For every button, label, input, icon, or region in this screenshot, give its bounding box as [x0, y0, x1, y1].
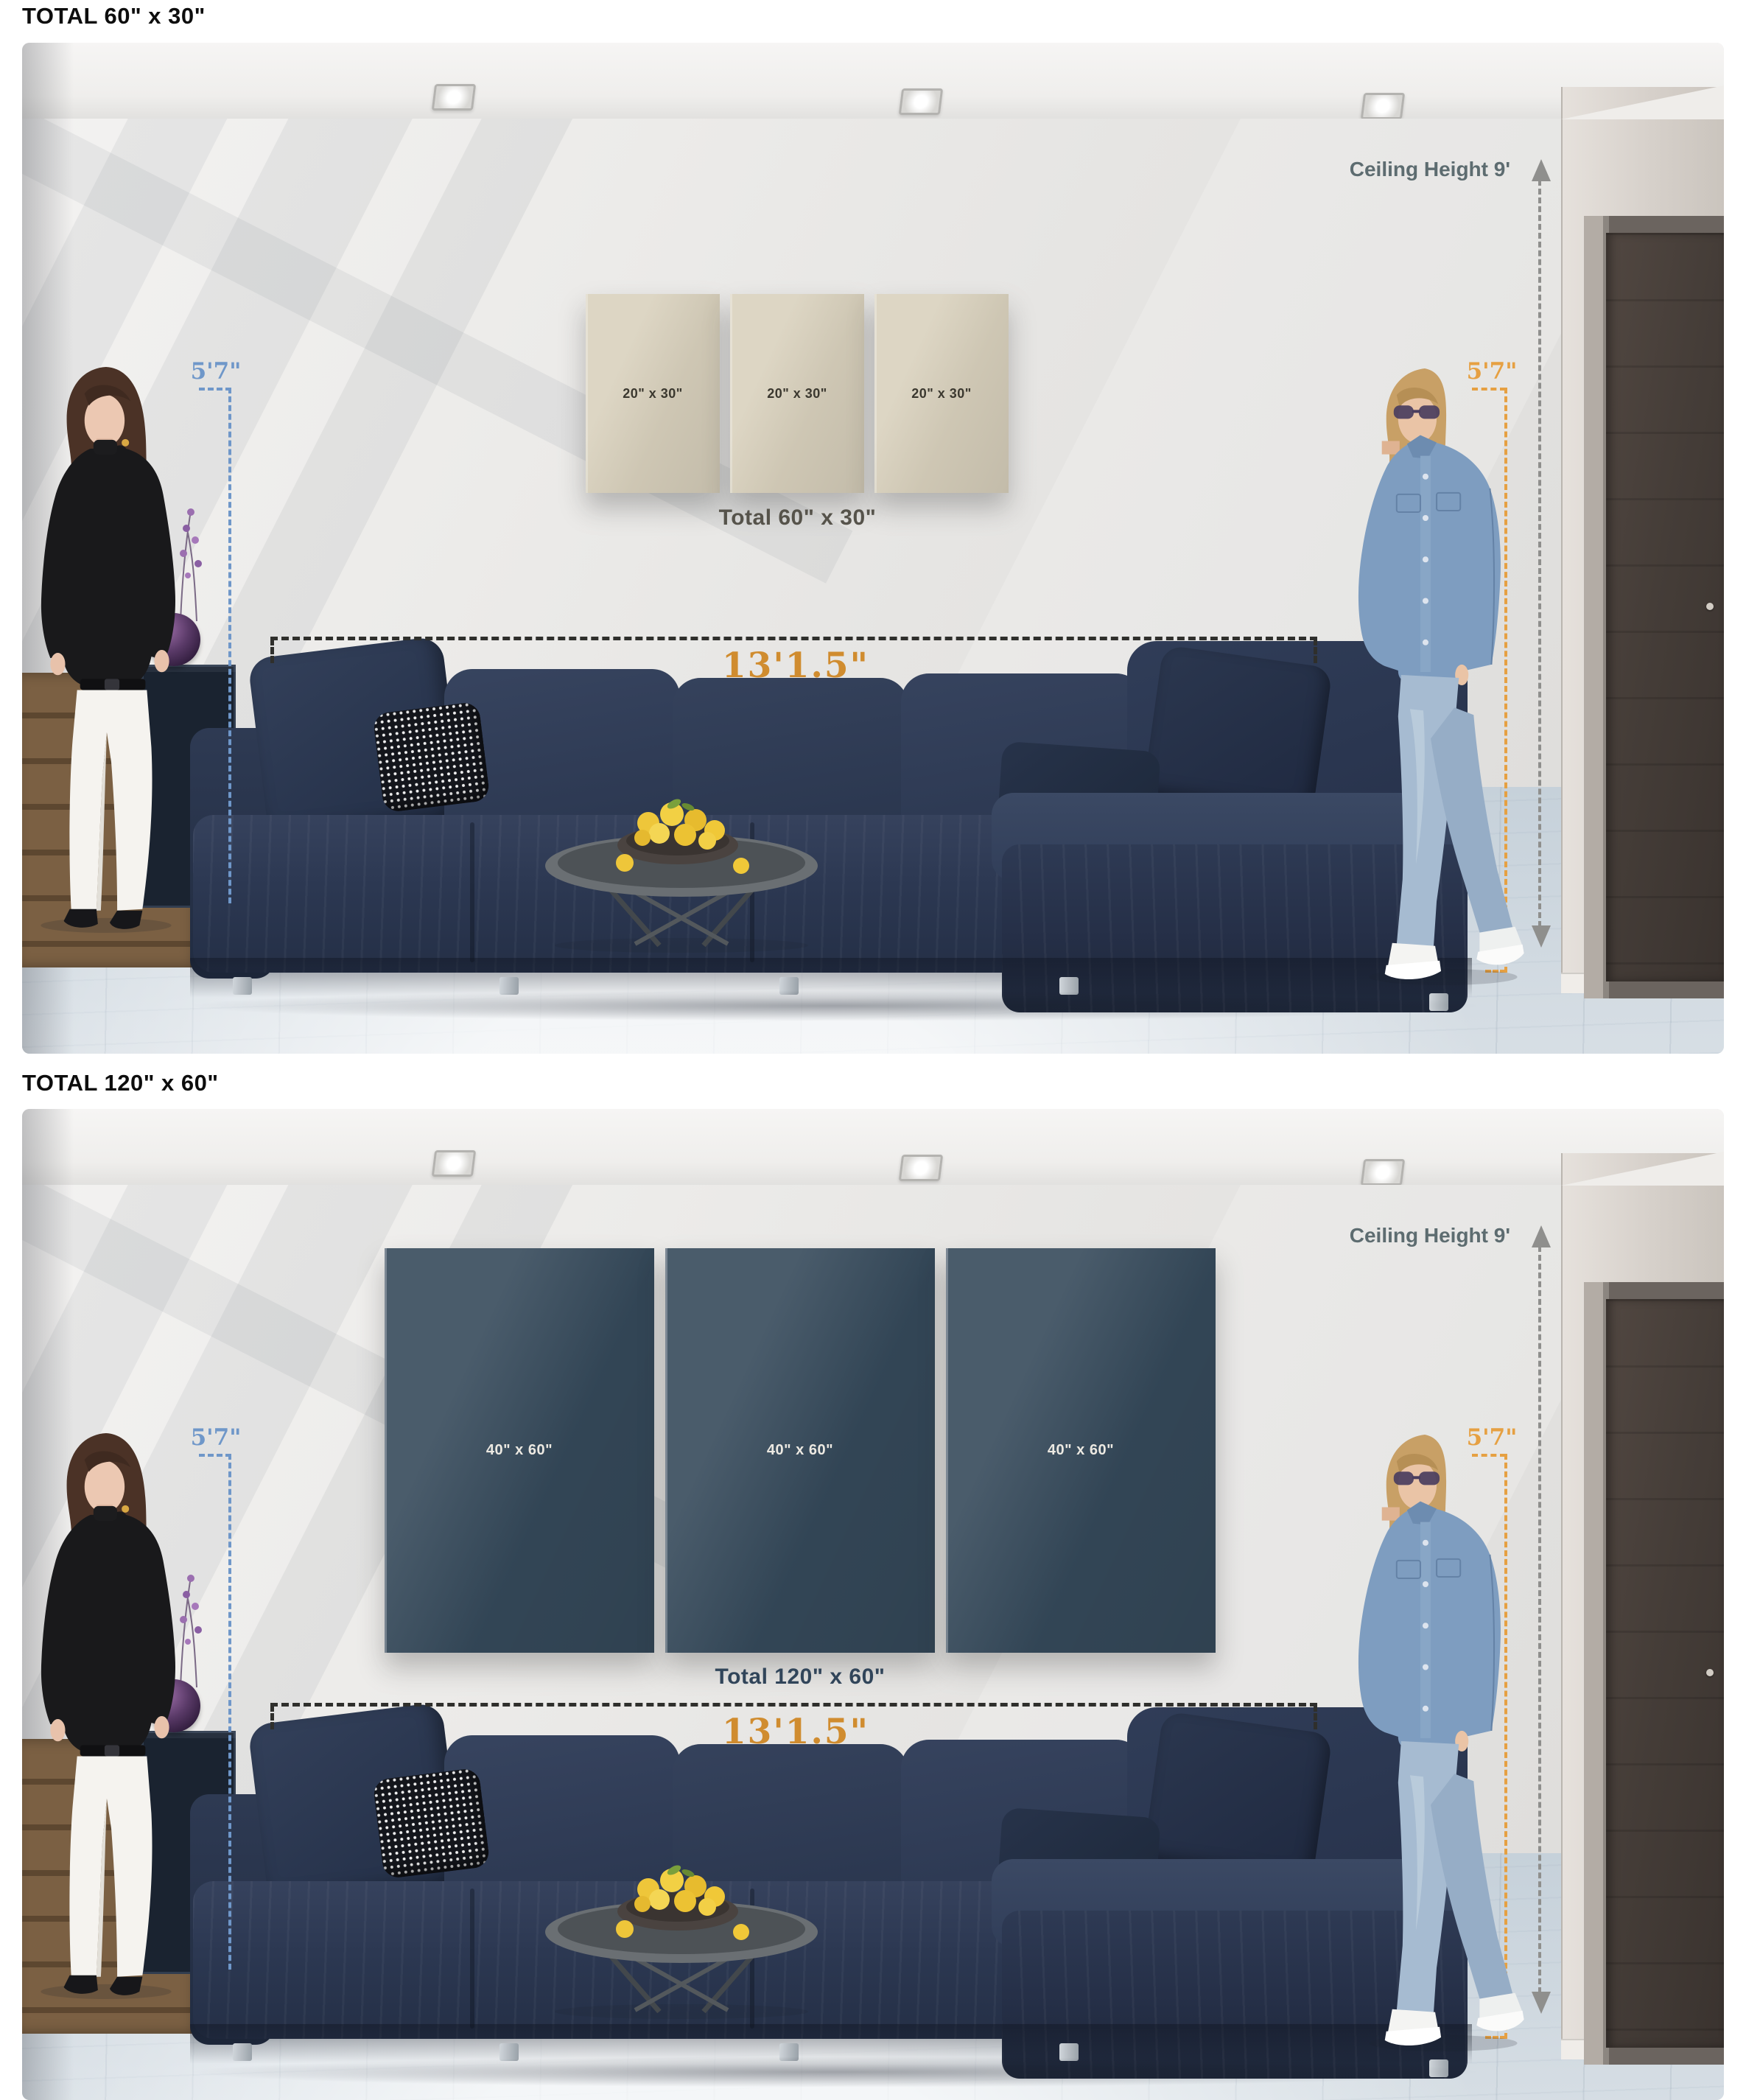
total-size-caption: Total 120" x 60" [385, 1665, 1216, 1690]
arrow-up-icon [1532, 1225, 1551, 1247]
canvas-panel-1: 40" x 60" [385, 1248, 654, 1653]
sofa-leg [233, 977, 252, 995]
person-right [1313, 1427, 1544, 2057]
panel-size-label: 40" x 60" [767, 1442, 833, 1459]
room-scene-small: 20" x 30" 20" x 30" 20" x 30" Total 60" … [22, 43, 1724, 1054]
person-right [1313, 361, 1544, 990]
checkered-pillow [372, 701, 490, 813]
sofa-leg [233, 2043, 252, 2061]
ceiling [22, 43, 1724, 120]
door-handle-icon [1706, 1669, 1714, 1676]
panel-size-label: 40" x 60" [1048, 1442, 1114, 1459]
panel-size-label: 40" x 60" [486, 1442, 553, 1459]
sofa-pillow [1143, 1711, 1333, 1884]
sofa-width-tick [270, 638, 274, 663]
panel-size-label: 20" x 30" [911, 386, 972, 402]
ceiling-light [1361, 93, 1405, 119]
door-handle-icon [1706, 603, 1714, 610]
canvas-panel-2: 20" x 30" [730, 294, 864, 493]
ceiling-light [899, 88, 943, 115]
ceiling [22, 1109, 1724, 1186]
ceiling-light [432, 84, 476, 111]
section-title-small: TOTAL 60" x 30" [22, 3, 206, 29]
person-left [27, 361, 193, 933]
canvas-panel-1: 20" x 30" [586, 294, 720, 493]
coffee-table [538, 769, 825, 954]
ceiling-light [899, 1155, 943, 1181]
left-height-line [228, 1454, 231, 1970]
canvas-panel-3: 20" x 30" [874, 294, 1009, 493]
sofa-pillow [1143, 645, 1333, 818]
sofa-width-line [270, 637, 1317, 640]
ceiling-height-label: Ceiling Height 9' [1267, 158, 1510, 181]
panel-size-label: 20" x 30" [767, 386, 827, 402]
left-height-line [228, 388, 231, 903]
left-height-dash [199, 388, 231, 391]
canvas-panel-3: 40" x 60" [946, 1248, 1216, 1653]
arrow-up-icon [1532, 159, 1551, 181]
room-scene-large: 40" x 60" 40" x 60" 40" x 60" Total 120"… [22, 1109, 1724, 2100]
sofa-width-label: 13'1.5" [575, 1712, 1017, 1752]
coffee-table [538, 1835, 825, 2020]
ceiling-height-label: Ceiling Height 9' [1267, 1224, 1510, 1247]
person-left [27, 1427, 193, 1999]
section-title-large: TOTAL 120" x 60" [22, 1070, 219, 1096]
sofa-width-tick [270, 1704, 274, 1729]
sofa-width-label: 13'1.5" [575, 645, 1017, 686]
panel-size-label: 20" x 30" [623, 386, 683, 402]
total-size-caption: Total 60" x 30" [586, 505, 1009, 531]
ceiling-light [432, 1150, 476, 1177]
left-height-dash [199, 1454, 231, 1457]
sofa-width-line [270, 1703, 1317, 1707]
checkered-pillow [372, 1768, 490, 1880]
ceiling-light [1361, 1159, 1405, 1186]
canvas-panel-2: 40" x 60" [665, 1248, 935, 1653]
